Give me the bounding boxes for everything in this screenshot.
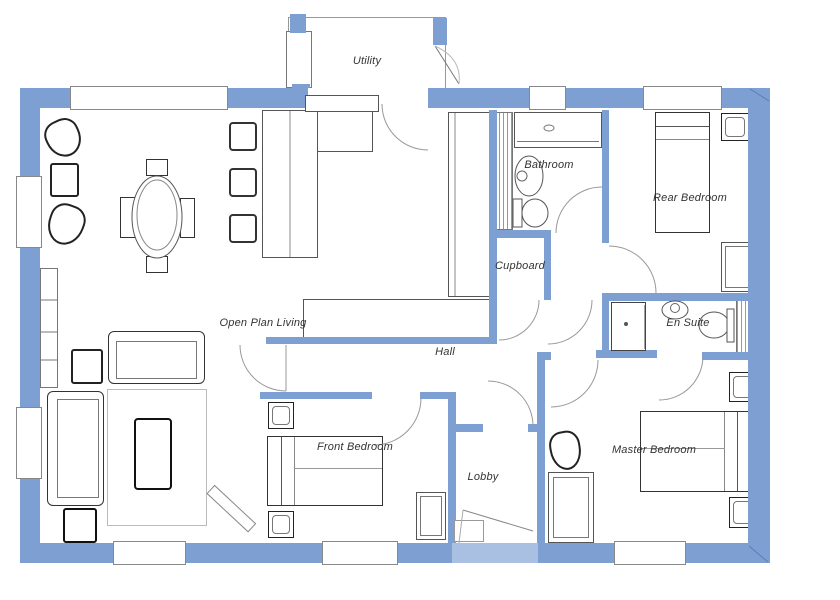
nightstand <box>268 511 294 538</box>
bed-pillow-line <box>294 437 295 505</box>
room-label-master-bedroom: Master Bedroom <box>612 444 696 456</box>
window-top-rear-bedroom <box>643 86 722 110</box>
bathroom-sink-tap <box>517 171 527 181</box>
door-arc-rear-bedroom <box>609 246 656 293</box>
bar-stool <box>229 122 257 151</box>
window-bottom-front-bedroom <box>322 541 398 565</box>
kitchen-island <box>262 110 318 258</box>
wall-front-bedroom-top-left <box>260 392 372 399</box>
room-label-lobby: Lobby <box>468 471 499 483</box>
dining-chair <box>146 159 168 176</box>
room-label-front-bedroom: Front Bedroom <box>317 441 393 453</box>
ensuite-toilet-cistern <box>727 309 734 342</box>
cabinet-door <box>725 246 749 288</box>
window-bottom-living <box>113 541 186 565</box>
room-label-utility: Utility <box>353 55 381 67</box>
dining-side-table <box>50 163 79 197</box>
bar-stool <box>229 214 257 243</box>
ensuite-shower-tray <box>611 302 646 351</box>
nightstand <box>721 113 749 141</box>
door-arc-master-bedroom <box>551 360 598 407</box>
ensuite-sink-tap <box>671 304 680 313</box>
utility-wall-cap-top-right <box>433 18 447 45</box>
cabinet-door <box>553 477 589 538</box>
window-bottom-master-bedroom <box>614 541 686 565</box>
bed-duvet-line <box>294 468 382 469</box>
room-label-en-suite: En Suite <box>666 317 709 329</box>
door-arc-bathroom <box>556 187 602 233</box>
dining-chair <box>120 197 137 238</box>
dining-chair <box>180 198 195 238</box>
wall-bathroom-rear-bedroom <box>602 110 609 243</box>
door-arc-hall-arm <box>548 300 592 344</box>
door-arc-utility-kitchen <box>382 104 428 150</box>
cabinet-door <box>420 496 442 536</box>
wall-ensuite-bottom-left <box>596 350 657 358</box>
sofa <box>108 331 205 384</box>
bath-tub <box>514 112 602 148</box>
window-left-living <box>16 407 42 479</box>
living-side-table <box>71 349 103 384</box>
outer-wall-left <box>20 88 40 563</box>
window-top-living <box>70 86 228 110</box>
wall-cupboard-right <box>544 238 551 300</box>
wall-lobby-top-left <box>448 424 483 432</box>
bed-pillow-line <box>656 139 709 140</box>
master-cabinet <box>548 472 594 543</box>
room-label-bathroom: Bathroom <box>524 159 573 171</box>
toilet-cistern <box>513 199 522 227</box>
door-arc-ensuite <box>659 356 703 400</box>
bar-stool <box>229 168 257 197</box>
floorplan-canvas: Utility Bathroom Rear Bedroom Cupboard O… <box>0 0 840 600</box>
bath-rim <box>517 141 599 142</box>
nightstand-top <box>272 515 290 534</box>
front-door-threshold <box>452 543 538 563</box>
living-shelf-unit <box>40 268 58 388</box>
dining-chair <box>146 256 168 273</box>
rear-bedroom-bed <box>655 112 710 233</box>
door-mat <box>454 520 484 542</box>
kitchen-counter-top <box>305 95 379 112</box>
room-label-hall: Hall <box>435 346 455 358</box>
outer-wall-right <box>748 88 770 563</box>
dining-armchair <box>42 199 90 250</box>
front-bedroom-cabinet <box>416 492 446 540</box>
bed-headboard <box>656 113 709 127</box>
wall-kitchen-bathroom <box>489 110 497 344</box>
nightstand-top <box>272 406 290 425</box>
utility-appliance <box>286 31 312 88</box>
wall-bathroom-cupboard <box>489 230 551 238</box>
sofa-cushions <box>116 341 197 379</box>
living-side-table <box>63 508 97 543</box>
wall-rear-bedroom-ensuite <box>602 293 748 301</box>
kitchen-tall-units <box>448 112 492 297</box>
toilet-bowl <box>522 199 548 227</box>
kitchen-counter-corner <box>317 111 373 152</box>
nightstand-top <box>725 117 745 137</box>
bed-pillow-line <box>724 412 725 491</box>
dining-table-inner <box>137 180 177 250</box>
dining-armchair <box>40 113 88 162</box>
door-arc-cupboard <box>499 300 539 340</box>
coffee-table <box>134 418 172 490</box>
wall-lobby-top-stub <box>528 424 543 432</box>
wall-ensuite-bottom-right <box>702 352 748 360</box>
dining-table <box>132 176 182 258</box>
wall-lobby-master <box>537 352 545 545</box>
room-label-open-plan-living: Open Plan Living <box>220 317 307 329</box>
window-top-bathroom <box>529 86 566 110</box>
wall-living-hall <box>266 337 493 344</box>
bed-headboard <box>268 437 282 505</box>
sofa <box>47 391 104 506</box>
door-arc-lobby <box>488 381 533 426</box>
door-arc-living-hall <box>240 345 286 391</box>
master-armchair <box>547 429 584 473</box>
window-left-dining <box>16 176 42 248</box>
wall-ensuite-shower-left <box>602 293 609 358</box>
sofa-cushions <box>57 399 99 498</box>
diagonal-console <box>207 486 255 532</box>
nightstand <box>268 402 294 429</box>
room-label-cupboard: Cupboard <box>495 260 545 272</box>
kitchen-worktop <box>303 299 493 338</box>
room-label-rear-bedroom: Rear Bedroom <box>653 192 727 204</box>
utility-wall-cap-top-left <box>290 14 306 33</box>
